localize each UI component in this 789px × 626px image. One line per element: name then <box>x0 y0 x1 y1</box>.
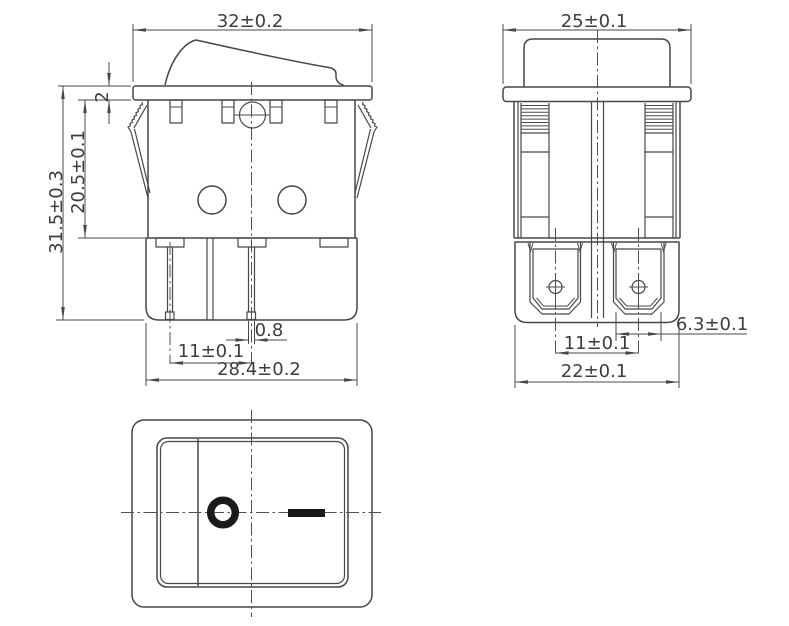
dim-terminal-width: 6.3±0.1 <box>616 312 748 341</box>
top-view <box>121 410 381 617</box>
dim-text-20-5: 20.5±0.1 <box>68 130 89 214</box>
dim-overall-height: 31.5±0.3 <box>46 86 144 320</box>
dim-text-2: 2 <box>92 91 113 102</box>
dim-text-25: 25±0.1 <box>561 11 628 32</box>
side-view: 25±0.1 6.3±0.1 11±0.1 22±0.1 <box>503 11 748 388</box>
middle-terminal <box>207 238 213 320</box>
dim-text-side-11: 11±0.1 <box>564 333 631 354</box>
side-right-clip <box>645 103 673 238</box>
front-left-clip <box>128 102 150 198</box>
dim-text-28-4: 28.4±0.2 <box>217 359 301 380</box>
front-view: 32±0.2 2 20.5±0.1 31.5±0.3 0.8 <box>46 11 377 386</box>
dim-terminal-spacing: 11±0.1 <box>556 333 639 354</box>
dim-text-6-3: 6.3±0.1 <box>676 314 748 335</box>
dim-body-height: 20.5±0.1 <box>68 100 146 238</box>
front-flange <box>133 86 372 100</box>
rocker-profile <box>165 40 344 85</box>
technical-drawing: 32±0.2 2 20.5±0.1 31.5±0.3 0.8 <box>0 0 789 626</box>
left-boss-circle <box>198 186 226 214</box>
dim-text-31-5: 31.5±0.3 <box>46 170 67 254</box>
drawing-canvas: 32±0.2 2 20.5±0.1 31.5±0.3 0.8 <box>0 0 789 626</box>
side-left-clip <box>521 103 549 238</box>
dim-text-22: 22±0.1 <box>561 361 628 382</box>
dim-text-0-8: 0.8 <box>255 320 284 341</box>
front-top-tabs <box>170 100 337 123</box>
dim-flange-thickness: 2 <box>58 62 131 124</box>
front-right-clip <box>355 102 377 198</box>
dim-text-32: 32±0.2 <box>217 11 284 32</box>
right-boss-circle <box>278 186 306 214</box>
power-on-symbol <box>288 509 325 517</box>
